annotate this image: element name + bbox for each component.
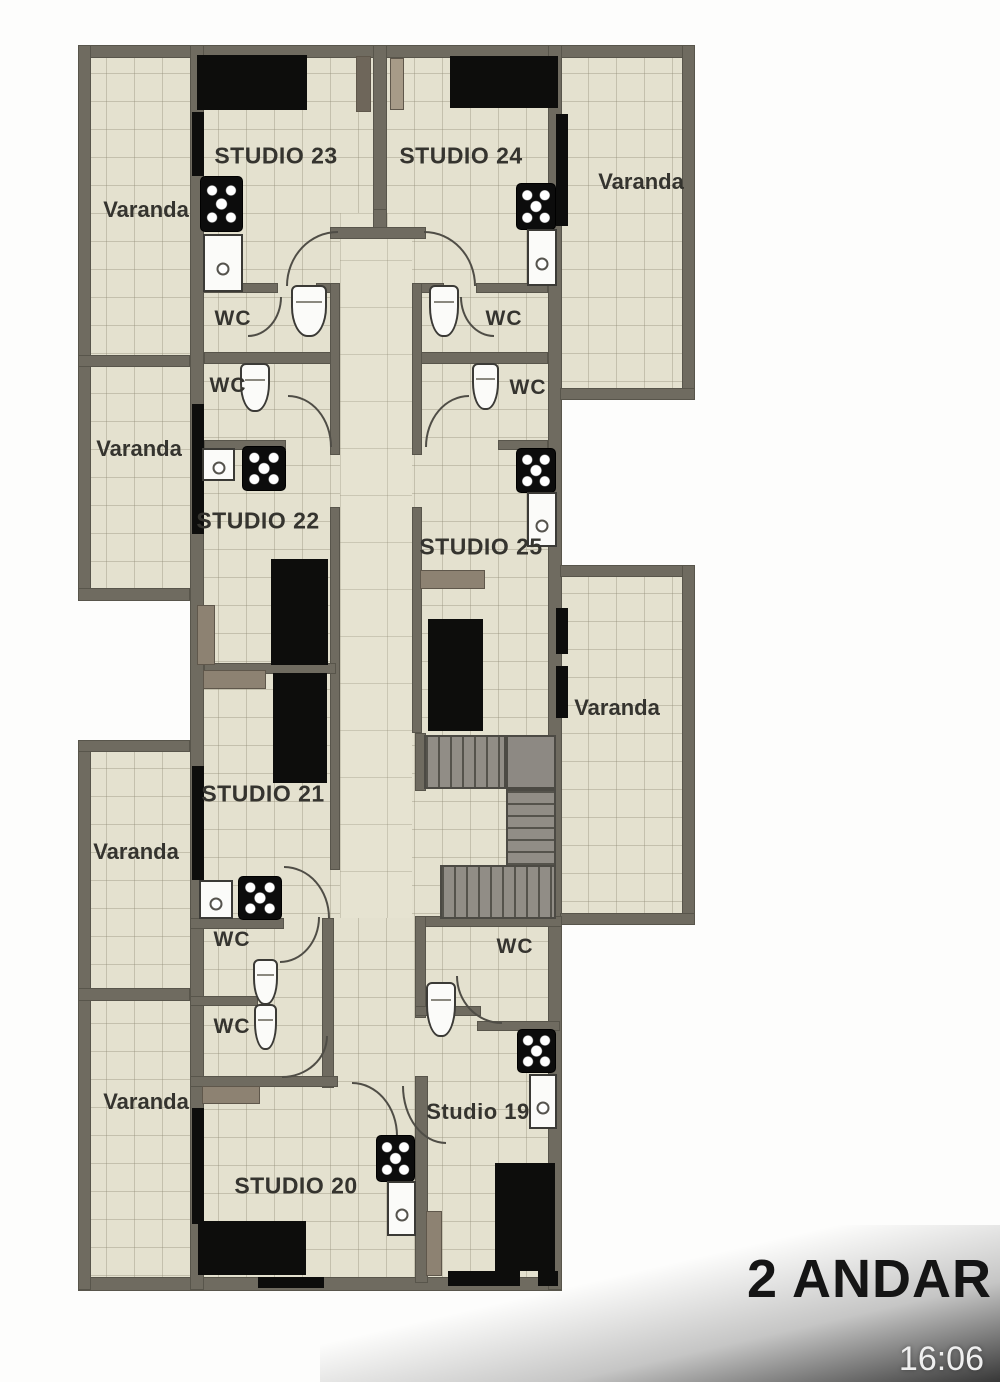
stove-studio25	[516, 448, 556, 493]
wall	[190, 996, 258, 1006]
bed-studio24	[450, 56, 558, 108]
label-varanda-top-left: Varanda	[103, 197, 189, 223]
label-studio20: STUDIO 20	[234, 1173, 357, 1200]
stove-studio20	[376, 1135, 415, 1182]
label-studio22: STUDIO 22	[196, 508, 319, 535]
wall	[330, 507, 340, 870]
bed-studio21	[273, 673, 327, 783]
wall	[78, 740, 91, 1290]
sink-studio19	[529, 1074, 557, 1129]
label-studio25: STUDIO 25	[419, 534, 542, 561]
varanda-left-2-floor	[78, 365, 190, 600]
balcony-door-studio25-b	[556, 666, 568, 718]
label-wc-studio25: WC	[510, 376, 547, 400]
label-varanda-left-4: Varanda	[103, 1089, 189, 1115]
wall	[330, 283, 340, 455]
label-wc-studio20: WC	[214, 1015, 251, 1039]
sink-studio23	[203, 234, 243, 292]
stove-studio23	[200, 176, 243, 232]
stove-studio22	[242, 446, 286, 491]
corridor-floor	[340, 213, 412, 918]
wall	[78, 355, 190, 367]
bed-studio25	[428, 619, 483, 731]
wardrobe-studio22	[271, 559, 328, 665]
bed-studio23	[197, 55, 307, 110]
wall	[78, 45, 91, 601]
stairs-lower-flight	[440, 865, 556, 919]
label-varanda-left-3: Varanda	[93, 839, 179, 865]
balcony-door-studio23	[192, 112, 204, 176]
wall	[204, 352, 340, 364]
wall	[322, 918, 334, 1088]
shelf-studio22-horizontal	[203, 670, 266, 689]
shelf-studio20	[202, 1086, 260, 1104]
wall	[78, 988, 190, 1001]
label-wc-studio23: WC	[215, 307, 252, 331]
wall	[415, 916, 426, 1018]
label-varanda-top-right: Varanda	[598, 169, 684, 195]
wall	[560, 388, 695, 400]
stairs-upper-flight	[424, 735, 506, 789]
sink-studio22	[202, 448, 235, 481]
label-varanda-left-2: Varanda	[96, 436, 182, 462]
wall	[682, 565, 695, 925]
shelf-studio22-vertical	[197, 605, 215, 665]
threshold-mark	[258, 1277, 324, 1288]
wall	[412, 283, 422, 455]
wall	[78, 740, 190, 752]
closet-top-dark	[356, 56, 371, 112]
label-wc-studio21: WC	[214, 928, 251, 952]
wall	[330, 227, 426, 239]
bed-studio20	[198, 1221, 306, 1275]
label-wc-studio24: WC	[486, 307, 523, 331]
label-studio23: STUDIO 23	[214, 143, 337, 170]
balcony-door-studio24	[556, 114, 568, 226]
floor-title: 2 ANDAR	[747, 1248, 992, 1310]
stairs-mid-flight	[506, 789, 556, 867]
stove-studio21	[238, 876, 282, 920]
stove-studio24	[516, 183, 556, 230]
wall	[560, 913, 695, 925]
label-studio21: STUDIO 21	[201, 781, 324, 808]
label-wc-studio22: WC	[210, 374, 247, 398]
sink-studio21	[199, 880, 233, 919]
wall	[78, 588, 190, 601]
balcony-door-studio20	[192, 1108, 204, 1224]
wall	[560, 565, 695, 577]
varanda-left-4-floor	[78, 995, 190, 1285]
balcony-door-studio25-a	[556, 608, 568, 654]
floor-plan-canvas: STUDIO 23 STUDIO 24 STUDIO 22 STUDIO 25 …	[0, 0, 1000, 1382]
closet-top-light	[390, 58, 404, 110]
varanda-left-3-floor	[78, 740, 190, 995]
shelf-studio25	[420, 570, 485, 589]
stove-studio19	[517, 1029, 556, 1073]
varanda-right-mid-floor	[560, 565, 695, 925]
sink-studio24	[527, 229, 557, 286]
label-studio24: STUDIO 24	[399, 143, 522, 170]
varanda-top-right-floor	[560, 45, 695, 400]
label-varanda-right-mid: Varanda	[574, 695, 660, 721]
wall	[682, 45, 695, 400]
wall	[373, 45, 387, 215]
clock-time: 16:06	[899, 1340, 984, 1379]
label-studio19: Studio 19	[426, 1099, 530, 1125]
stairs-landing	[506, 735, 556, 789]
label-wc-right: WC	[497, 935, 534, 959]
